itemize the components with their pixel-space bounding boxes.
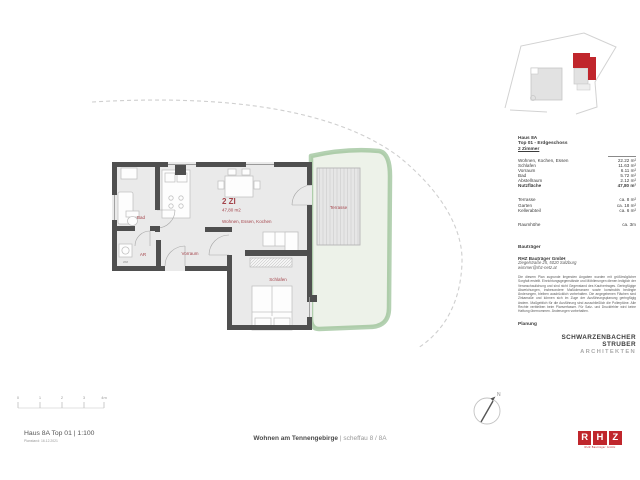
logo-letter-h: H	[593, 431, 606, 445]
developer-disclaimer: Die diesem Plan zugrunde liegenden Angab…	[518, 275, 636, 313]
titleblock-center: Wohnen am Tennengebirge | scheffau 8 / 8…	[160, 435, 480, 442]
scale-bar: 0 1 2 3 4m	[14, 393, 114, 411]
developer-email: wimmer@rhz-netz.at	[518, 266, 636, 271]
plan-status: Planstand: 16.12.2021	[24, 439, 94, 443]
firm-name-line3: ARCHITEKTEN	[518, 349, 636, 356]
unit-label: 2 ZI	[222, 197, 236, 206]
site-plan	[500, 28, 640, 123]
ar-label: AR	[140, 252, 147, 257]
developer-block: Bauträger RHZ Bauträger GmbH Ziegelstraß…	[518, 245, 636, 313]
titleblock-left: Haus 8A Top 01 | 1:100 Planstand: 16.12.…	[24, 430, 94, 443]
project-location: | scheffau 8 / 8A	[338, 435, 387, 442]
svg-text:1: 1	[39, 395, 42, 400]
plan-title: Haus 8A Top 01 | 1:100	[24, 430, 94, 437]
firm-name-line2: STRUBER	[518, 342, 636, 349]
floor-plan: 2 ZI 47,80 m2 Wohnen, Essen, Kochen Bad …	[95, 140, 435, 370]
kitchen-counter	[162, 170, 190, 218]
plan-sheet: 2 ZI 47,80 m2 Wohnen, Essen, Kochen Bad …	[0, 0, 640, 480]
values-rule	[608, 156, 636, 157]
living-room-label: Wohnen, Essen, Kochen	[222, 219, 272, 224]
north-label: N	[497, 392, 501, 398]
project-name: Wohnen am Tennengebirge	[253, 435, 338, 442]
svg-text:3: 3	[83, 395, 86, 400]
schlafen-label: Schlafen	[269, 277, 287, 282]
washing-machine	[119, 244, 132, 257]
logo-tagline: RHZ Bauträger GmbH	[578, 446, 622, 449]
logo-letter-z: Z	[609, 431, 622, 445]
terrasse-label: Terrasse	[330, 205, 348, 210]
svg-text:2: 2	[61, 395, 64, 400]
rhz-logo: R H Z RHZ Bauträger GmbH	[578, 431, 622, 449]
site-plan-highlighted-building	[573, 53, 596, 90]
unit-type: 2 Zimmer	[518, 147, 636, 152]
bed	[252, 286, 292, 330]
unit-area-label: 47,80 m2	[222, 208, 241, 213]
wm-label: WM	[123, 260, 129, 264]
svg-text:0: 0	[17, 395, 20, 400]
wardrobe	[250, 258, 292, 267]
svg-text:4m: 4m	[101, 395, 107, 400]
info-panel: Haus 8A Top 01 - Erdgeschoss 2 Zimmer Wo…	[518, 136, 636, 356]
planning-header: Planung	[518, 322, 636, 327]
bad-label: Bad	[137, 215, 146, 220]
logo-letter-r: R	[578, 431, 591, 445]
vorraum-label: Vorraum	[181, 251, 198, 256]
room-height-row: Raumhöhe ca. 3m	[518, 222, 636, 227]
developer-header: Bauträger	[518, 245, 636, 250]
architect-firm: SCHWARZENBACHER STRUBER ARCHITEKTEN	[518, 335, 636, 355]
north-arrow: N	[468, 385, 510, 430]
site-plan-neighbor-building	[531, 68, 563, 101]
